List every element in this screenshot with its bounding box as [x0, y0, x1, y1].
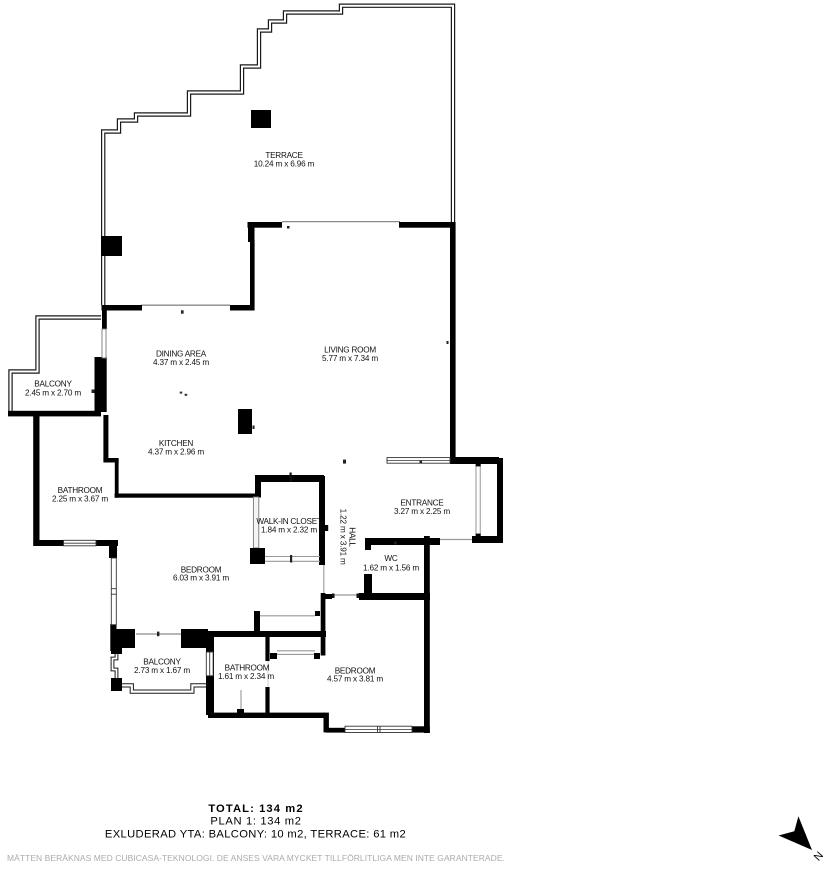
svg-text:EXLUDERAD YTA: BALCONY: 10 m2,: EXLUDERAD YTA: BALCONY: 10 m2, TERRACE: …	[105, 828, 406, 840]
svg-text:MÄTTEN BERÄKNAS MED CUBICASA-T: MÄTTEN BERÄKNAS MED CUBICASA-TEKNOLOGI. …	[7, 853, 505, 863]
svg-text:1.22 m x 3.91 m: 1.22 m x 3.91 m	[339, 509, 348, 565]
svg-text:1.61 m x 2.34 m: 1.61 m x 2.34 m	[218, 672, 274, 681]
svg-text:HALL: HALL	[348, 527, 357, 547]
svg-text:TERRACE: TERRACE	[265, 151, 303, 160]
svg-text:5.77 m x 7.34 m: 5.77 m x 7.34 m	[322, 354, 378, 363]
svg-text:1.62 m x 1.56 m: 1.62 m x 1.56 m	[363, 563, 419, 572]
svg-text:10.24 m x 6.96 m: 10.24 m x 6.96 m	[254, 160, 315, 169]
svg-text:WC: WC	[384, 554, 397, 563]
svg-text:2.25 m x 3.67 m: 2.25 m x 3.67 m	[52, 494, 108, 503]
svg-text:3.27 m x 2.25 m: 3.27 m x 2.25 m	[394, 507, 450, 516]
svg-text:PLAN 1: 134 m2: PLAN 1: 134 m2	[210, 816, 301, 828]
svg-text:2.45 m x 2.70 m: 2.45 m x 2.70 m	[25, 388, 81, 397]
svg-text:1.84 m x 2.32 m: 1.84 m x 2.32 m	[261, 526, 317, 535]
svg-text:TOTAL: 134 m2: TOTAL: 134 m2	[208, 803, 303, 815]
svg-text:4.37 m x 2.96 m: 4.37 m x 2.96 m	[148, 448, 204, 457]
svg-text:6.03 m x 3.91 m: 6.03 m x 3.91 m	[173, 574, 229, 583]
svg-text:4.57 m x 3.81 m: 4.57 m x 3.81 m	[327, 675, 383, 684]
svg-text:4.37 m x 2.45 m: 4.37 m x 2.45 m	[153, 358, 209, 367]
svg-text:2.73 m x 1.67 m: 2.73 m x 1.67 m	[134, 666, 190, 675]
